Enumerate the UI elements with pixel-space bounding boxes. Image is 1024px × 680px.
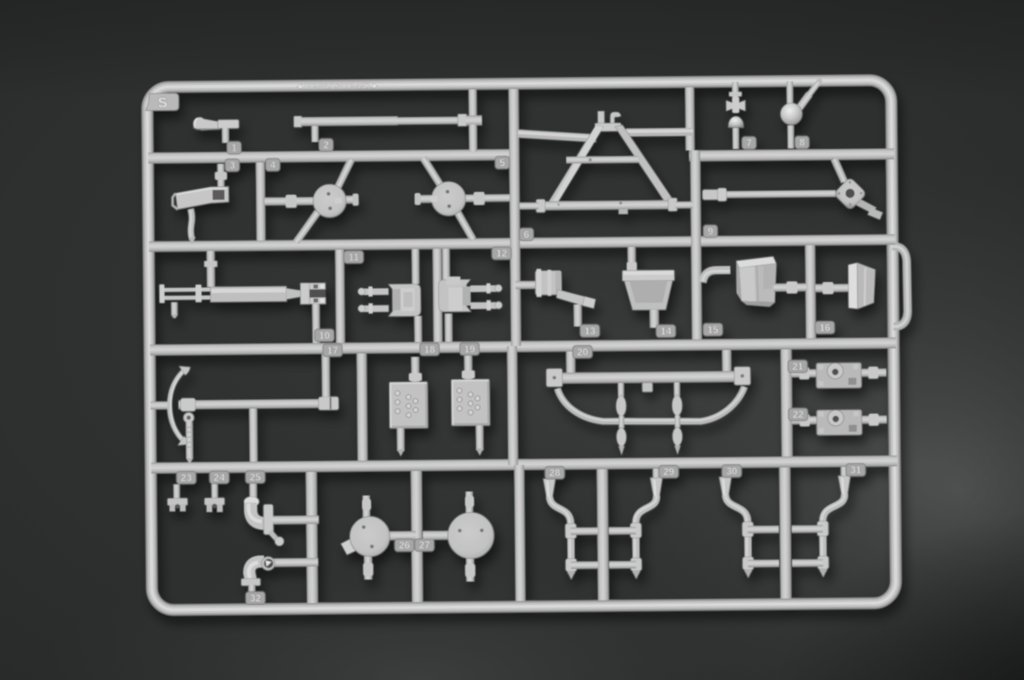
svg-text:29: 29 <box>663 467 675 478</box>
svg-text:7: 7 <box>746 138 752 149</box>
svg-text:16: 16 <box>819 323 831 334</box>
svg-text:24: 24 <box>214 473 226 484</box>
svg-text:26: 26 <box>399 541 411 552</box>
svg-text:19: 19 <box>464 345 476 356</box>
svg-text:30: 30 <box>726 467 738 478</box>
svg-text:13: 13 <box>584 326 596 337</box>
svg-text:31: 31 <box>850 465 862 476</box>
svg-text:15: 15 <box>707 325 719 336</box>
svg-text:2: 2 <box>323 140 329 151</box>
svg-text:4: 4 <box>270 160 276 171</box>
svg-text:18: 18 <box>424 345 436 356</box>
svg-text:10: 10 <box>319 331 331 342</box>
svg-text:8: 8 <box>799 138 805 149</box>
svg-text:12: 12 <box>496 249 508 260</box>
svg-text:6: 6 <box>524 230 530 241</box>
svg-text:22: 22 <box>793 410 805 421</box>
svg-text:3: 3 <box>229 161 235 172</box>
svg-text:5: 5 <box>499 158 505 169</box>
svg-text:27: 27 <box>419 540 431 551</box>
svg-text:S: S <box>158 95 168 111</box>
svg-text:32: 32 <box>250 594 262 605</box>
svg-text:20: 20 <box>577 347 589 358</box>
svg-text:1: 1 <box>231 143 237 154</box>
svg-text:21: 21 <box>792 362 804 373</box>
svg-text:9: 9 <box>708 227 714 238</box>
svg-text:23: 23 <box>181 473 193 484</box>
svg-text:◄00986/23009451►: ◄00986/23009451► <box>295 80 380 91</box>
svg-text:28: 28 <box>549 468 561 479</box>
svg-text:14: 14 <box>660 327 672 338</box>
svg-text:11: 11 <box>348 253 359 264</box>
svg-text:17: 17 <box>327 346 339 357</box>
svg-text:25: 25 <box>250 473 262 484</box>
